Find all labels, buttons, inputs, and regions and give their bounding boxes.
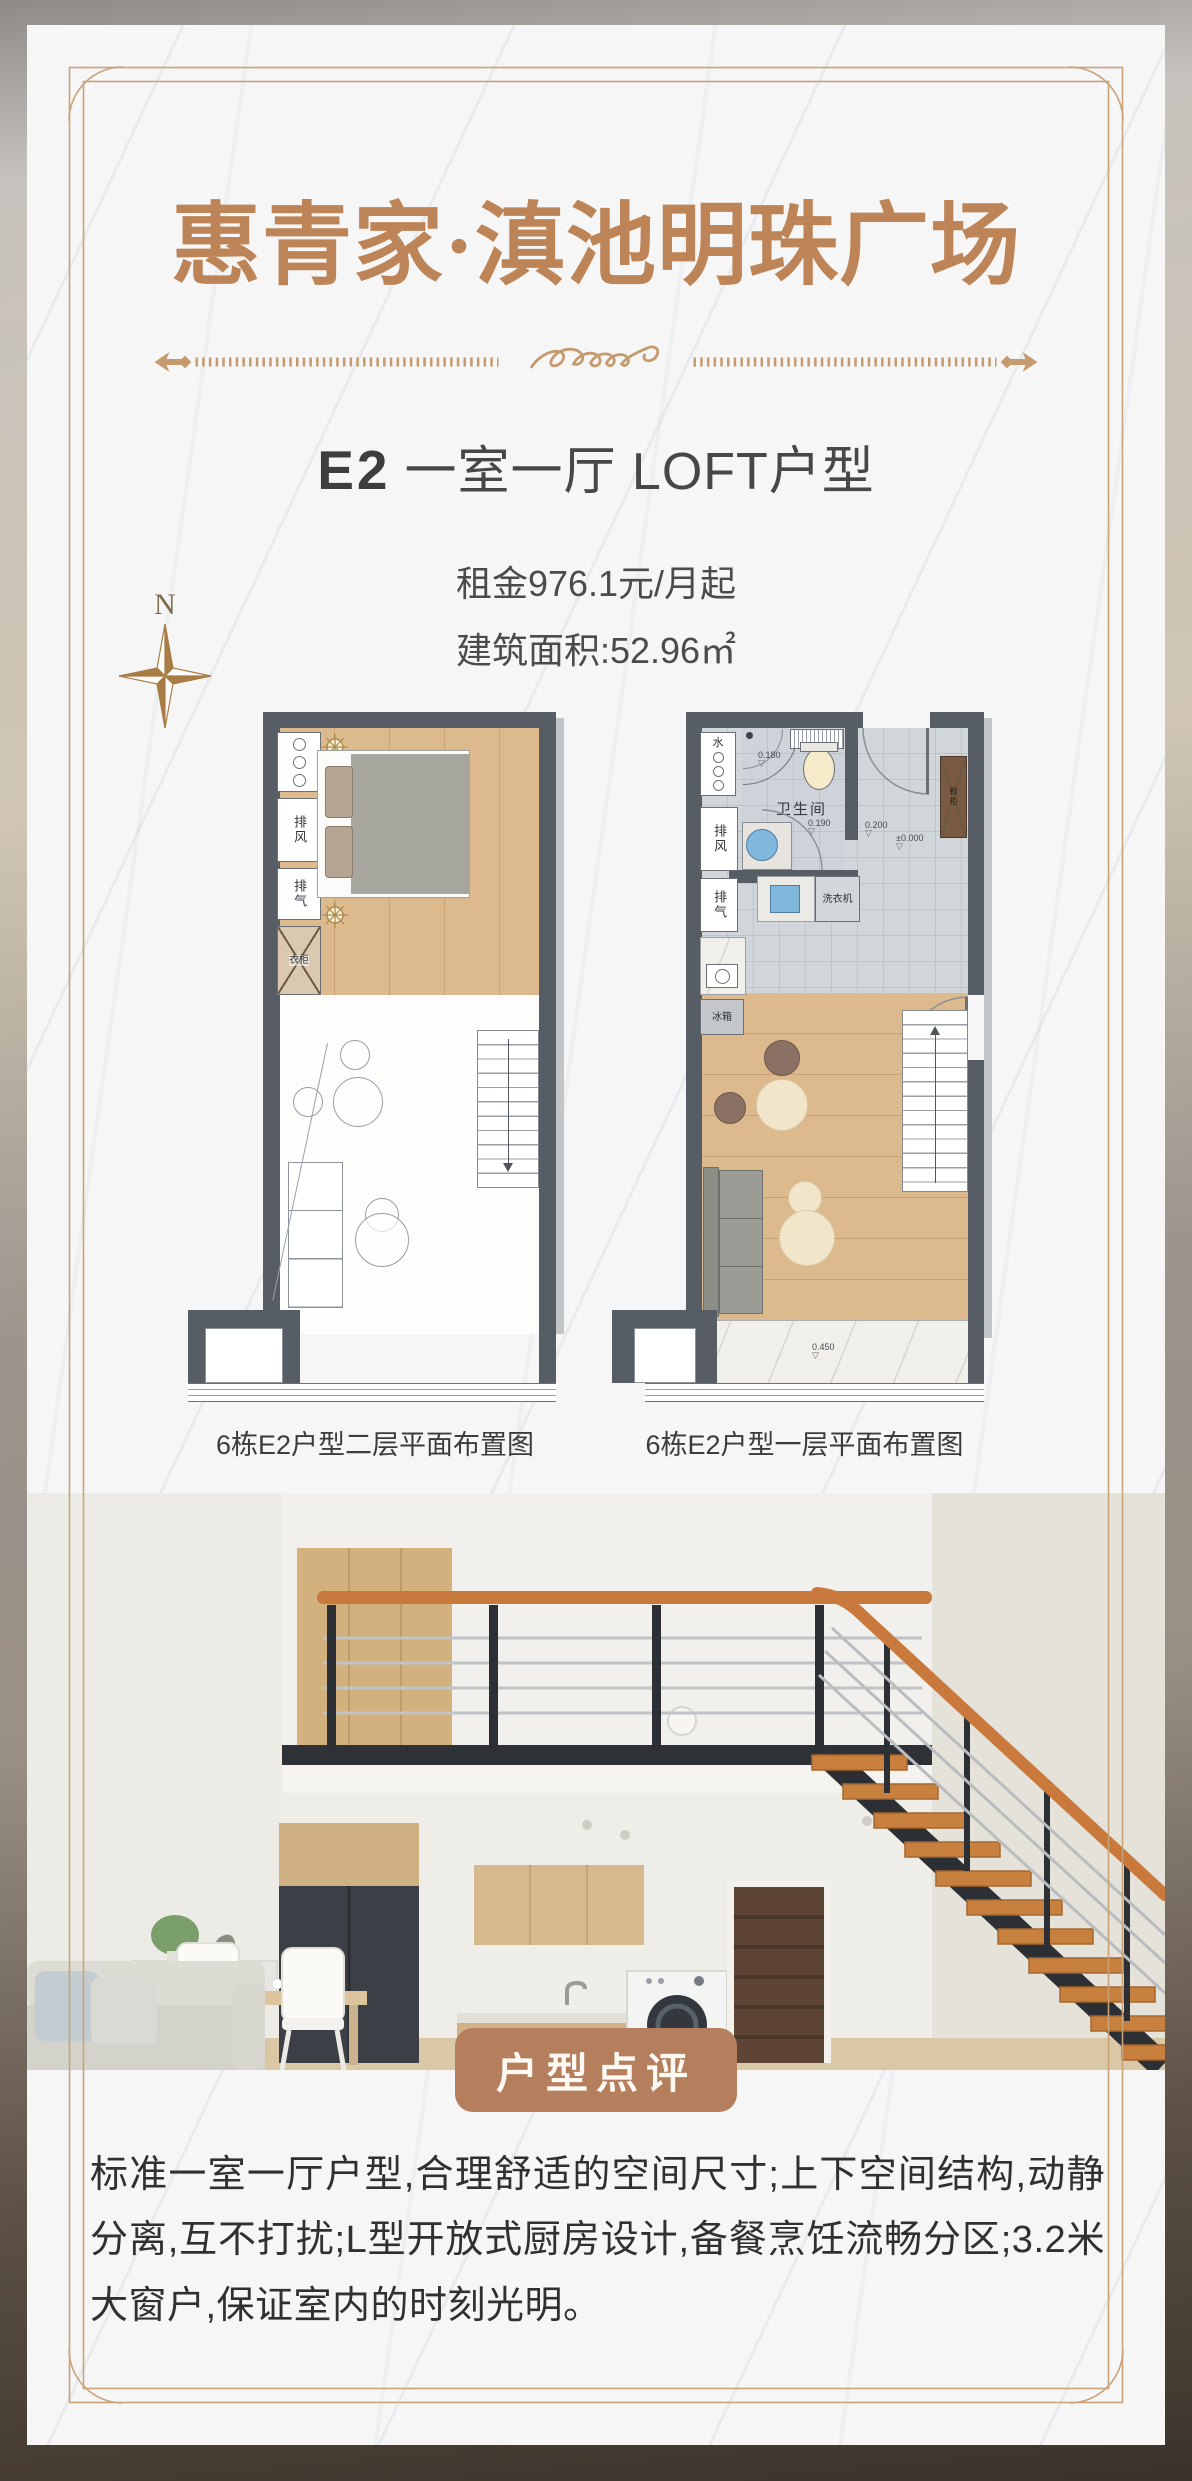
- wall-right: [539, 712, 556, 1383]
- stool: [764, 1040, 800, 1076]
- stairs-up: [902, 1010, 968, 1192]
- unit-desc: 一室一厅 LOFT户型: [404, 443, 874, 501]
- table-outline: [293, 1087, 323, 1117]
- table-outline: [333, 1077, 383, 1127]
- balcony-marble-floor: [702, 1320, 968, 1383]
- water-label: 水: [713, 737, 724, 749]
- exhaust-air-box: 排风: [700, 807, 738, 871]
- ceiling-lamp-icon: [322, 902, 348, 928]
- upper-cabinets: [474, 1865, 644, 1945]
- countertop: [457, 2013, 627, 2023]
- divider-left-ornament: [155, 352, 192, 372]
- review-badge: 户型点评: [455, 2028, 737, 2112]
- window-band: [645, 1383, 984, 1402]
- exhaust-air-box: 排风: [277, 798, 321, 862]
- review-paragraph: 标准一室一厅户型,合理舒适的空间尺寸;上下空间结构,动静分离,互不打扰;L型开放…: [90, 2143, 1105, 2339]
- washer-label: 洗衣机: [823, 894, 853, 905]
- window-band: [188, 1383, 556, 1402]
- plan-shadow-edge: [556, 718, 564, 1334]
- plan-shadow-edge: [984, 718, 992, 1338]
- ac-platform-inner: [634, 1328, 696, 1383]
- entry-door-arc: [863, 728, 929, 794]
- interior-photo: [27, 1493, 1165, 2070]
- sofa: [27, 1961, 265, 2070]
- wall-right-upper: [968, 712, 984, 995]
- round-rug: [756, 1079, 808, 1131]
- pillow: [325, 766, 353, 818]
- entry-door: [727, 1881, 831, 2063]
- poster-root: 惠青家·滇池明珠广场 E2一室一厅 LOFT户型 租金976.1元/月起 建筑面…: [0, 0, 1192, 2481]
- toilet: [803, 748, 835, 790]
- elevation-label: 0.450▽: [812, 1342, 835, 1359]
- exhaust-air-label: 排风: [712, 824, 726, 854]
- wall-right-lower: [968, 1060, 984, 1383]
- bathroom-wall-right: [845, 728, 858, 840]
- exhaust-gas-label: 排气: [712, 890, 726, 920]
- pipe-shaft-box: [277, 732, 321, 792]
- shoe-cabinet-label: 鞋柜: [948, 787, 959, 807]
- wall-top: [263, 712, 556, 728]
- caption-lower-plan: 6栋E2户型一层平面布置图: [612, 1423, 997, 1462]
- table-outline: [355, 1213, 409, 1267]
- kitchen-sink: [770, 885, 800, 913]
- sofa: [719, 1170, 763, 1314]
- divider-flourish: [532, 347, 658, 367]
- stool: [714, 1092, 746, 1124]
- exhaust-air-label: 排风: [292, 815, 306, 845]
- stairs-down: [477, 1030, 539, 1188]
- fridge-top-cabinet: [279, 1823, 419, 1886]
- fridge-box: 冰箱: [700, 999, 744, 1035]
- compass-n-label: N: [115, 588, 215, 622]
- ornament-divider: [154, 339, 1039, 385]
- cooktop-box: [706, 964, 738, 988]
- table-outline: [340, 1040, 370, 1070]
- elevation-label: 0.180▽: [758, 750, 781, 767]
- page-title: 惠青家·滇池明珠广场: [27, 193, 1165, 301]
- washer-box: 洗衣机: [815, 876, 860, 922]
- mezzanine-wardrobe: [297, 1548, 452, 1748]
- round-rug: [779, 1210, 835, 1266]
- sofa-back: [703, 1167, 719, 1317]
- ceiling-light: [668, 1707, 696, 1735]
- exhaust-gas-box: 排气: [700, 878, 738, 932]
- unit-subtitle: E2一室一厅 LOFT户型: [27, 429, 1165, 504]
- floor-plan-lower: 卫生间 洗衣机 水 排风 排气: [612, 712, 997, 1412]
- fridge-label: 冰箱: [712, 1012, 732, 1023]
- divider-right-ornament: [1001, 352, 1038, 372]
- shower-head-icon: [746, 732, 753, 739]
- backsplash: [474, 1945, 644, 2013]
- pillow: [325, 826, 353, 878]
- wardrobe-box: 衣柜: [277, 926, 321, 995]
- toilet-tank: [800, 742, 838, 752]
- balcony-inner: [205, 1328, 283, 1383]
- sofa-cushion-blue: [35, 1971, 99, 2041]
- exhaust-gas-label: 排气: [292, 879, 306, 909]
- floor-plan-upper: 排风 排气 衣柜: [185, 712, 565, 1412]
- sofa-armrest: [232, 1983, 265, 2070]
- wardrobe-label: 衣柜: [289, 955, 309, 966]
- water-shaft-box: 水: [700, 732, 736, 796]
- elevation-label: ±0.000▽: [896, 833, 923, 850]
- caption-upper-plan: 6栋E2户型二层平面布置图: [185, 1423, 565, 1462]
- sofa-cushion: [91, 1977, 157, 2045]
- exhaust-gas-box: 排气: [277, 868, 321, 920]
- shoe-cabinet: 鞋柜: [940, 756, 967, 838]
- wall-top-left: [686, 712, 863, 728]
- bed-blanket: [351, 754, 470, 894]
- poster-card: 惠青家·滇池明珠广场 E2一室一厅 LOFT户型 租金976.1元/月起 建筑面…: [27, 25, 1165, 2445]
- unit-code: E2: [317, 439, 390, 501]
- elevation-label: 0.190▽: [808, 818, 831, 835]
- elevation-label: 0.200▽: [865, 820, 888, 837]
